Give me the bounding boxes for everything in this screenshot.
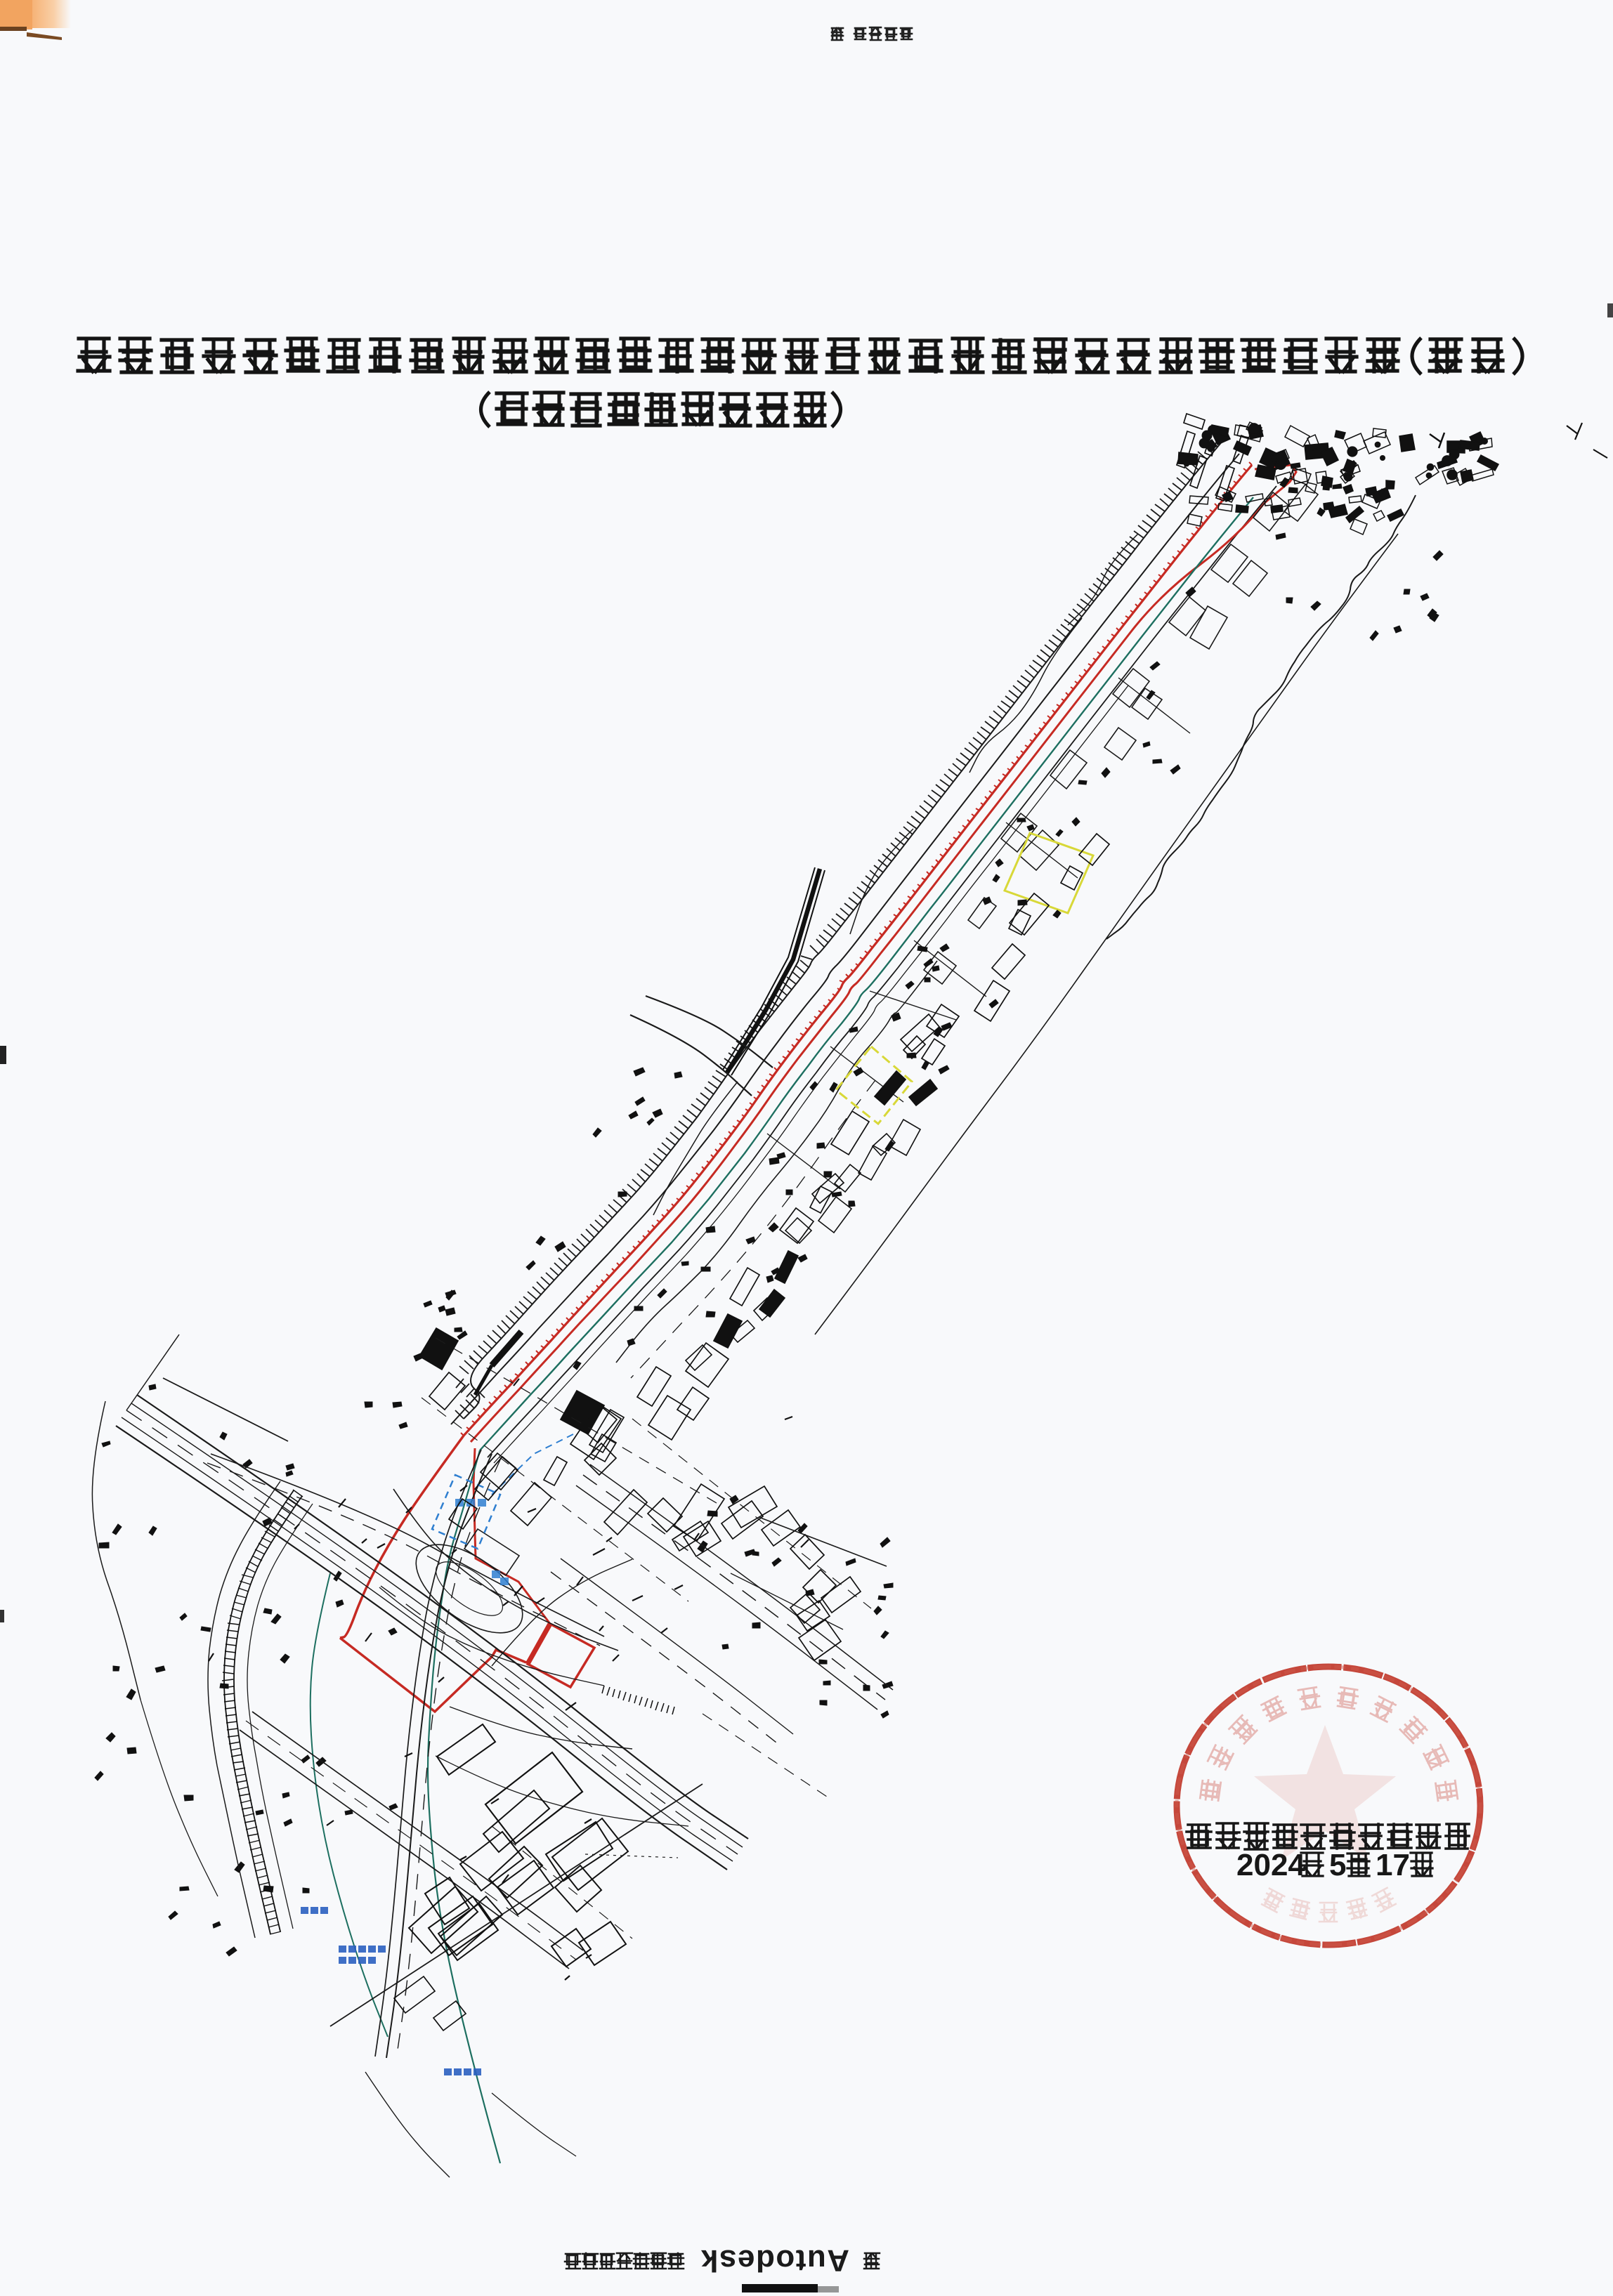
svg-text:Autodesk: Autodesk [700, 2243, 849, 2278]
svg-text:5: 5 [1329, 1848, 1346, 1882]
svg-text:17: 17 [1376, 1848, 1410, 1882]
svg-text:2024: 2024 [1236, 1848, 1305, 1882]
